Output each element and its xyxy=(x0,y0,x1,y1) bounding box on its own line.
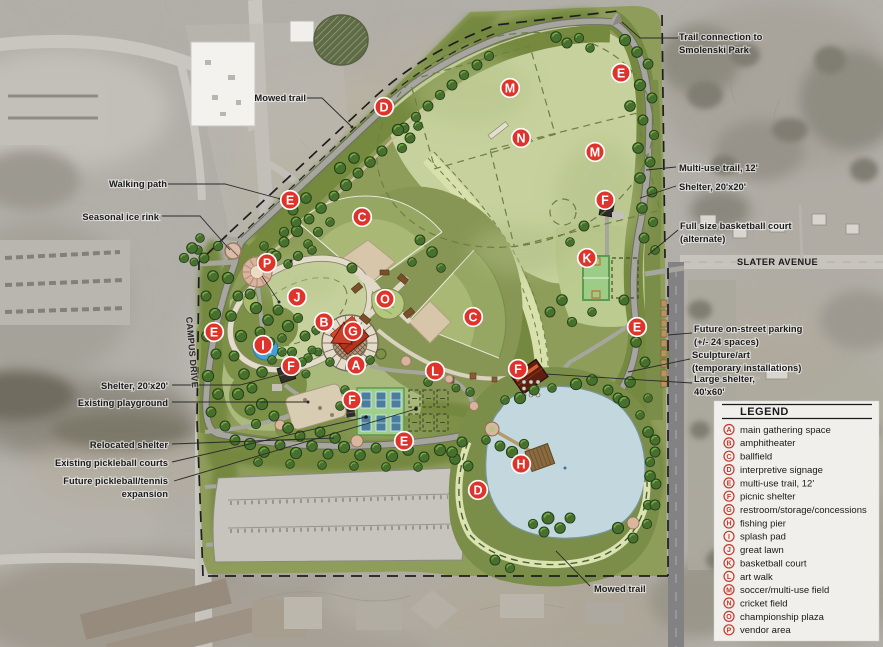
svg-text:Walking path: Walking path xyxy=(109,178,167,189)
svg-text:E: E xyxy=(727,481,732,488)
svg-text:B: B xyxy=(319,315,328,329)
svg-text:B: B xyxy=(726,441,731,448)
svg-text:E: E xyxy=(400,434,408,448)
svg-text:LEGEND: LEGEND xyxy=(740,406,789,418)
svg-text:L: L xyxy=(431,364,439,378)
svg-text:Full size basketball court: Full size basketball court xyxy=(680,220,792,231)
svg-text:Large shelter,: Large shelter, xyxy=(694,373,755,384)
svg-text:F: F xyxy=(348,393,356,407)
svg-text:Existing pickleball courts: Existing pickleball courts xyxy=(55,457,168,468)
svg-text:H: H xyxy=(516,457,525,471)
svg-text:G: G xyxy=(726,507,732,514)
svg-text:multi-use trail, 12': multi-use trail, 12' xyxy=(740,478,814,489)
svg-text:J: J xyxy=(294,290,301,304)
svg-text:expansion: expansion xyxy=(122,488,169,499)
svg-text:F: F xyxy=(287,359,295,373)
svg-text:cricket field: cricket field xyxy=(740,598,788,609)
svg-text:F: F xyxy=(727,494,732,501)
svg-text:art walk: art walk xyxy=(740,572,773,583)
svg-text:vendor area: vendor area xyxy=(740,625,791,636)
svg-text:E: E xyxy=(286,193,294,207)
svg-text:M: M xyxy=(726,587,732,594)
svg-text:Existing playground: Existing playground xyxy=(78,397,168,408)
svg-text:E: E xyxy=(617,66,625,80)
svg-text:fishing pier: fishing pier xyxy=(740,518,786,529)
svg-text:D: D xyxy=(473,483,482,497)
svg-text:N: N xyxy=(726,601,731,608)
svg-text:D: D xyxy=(726,467,731,474)
svg-text:F: F xyxy=(601,193,609,207)
svg-text:Multi-use trail, 12': Multi-use trail, 12' xyxy=(679,162,758,173)
svg-text:Trail connection to: Trail connection to xyxy=(679,31,763,42)
svg-text:N: N xyxy=(516,131,525,145)
svg-text:Shelter, 20'x20': Shelter, 20'x20' xyxy=(679,181,746,192)
svg-text:championship plaza: championship plaza xyxy=(740,612,825,623)
svg-text:C: C xyxy=(357,210,366,224)
svg-text:A: A xyxy=(351,358,360,372)
svg-text:C: C xyxy=(726,454,731,461)
svg-text:I: I xyxy=(728,534,730,541)
svg-text:ballfield: ballfield xyxy=(740,452,772,463)
svg-text:F: F xyxy=(514,362,522,376)
svg-text:Sculpture/art: Sculpture/art xyxy=(692,349,750,360)
svg-text:Mowed trail: Mowed trail xyxy=(594,583,646,594)
svg-text:soccer/multi-use field: soccer/multi-use field xyxy=(740,585,829,596)
svg-text:C: C xyxy=(468,310,477,324)
svg-text:A: A xyxy=(726,427,731,434)
svg-text:Relocated shelter: Relocated shelter xyxy=(90,439,169,450)
svg-text:E: E xyxy=(210,325,218,339)
svg-text:E: E xyxy=(633,320,641,334)
svg-text:K: K xyxy=(582,251,591,265)
svg-text:H: H xyxy=(726,521,731,528)
svg-text:Smolenski Park: Smolenski Park xyxy=(679,44,750,55)
svg-text:splash pad: splash pad xyxy=(740,532,786,543)
svg-text:Shelter, 20'x20': Shelter, 20'x20' xyxy=(101,380,168,391)
svg-text:(+/- 24 spaces): (+/- 24 spaces) xyxy=(694,336,759,347)
svg-text:G: G xyxy=(348,324,358,338)
svg-text:(temporary installations): (temporary installations) xyxy=(692,362,801,373)
svg-text:P: P xyxy=(727,627,732,634)
svg-text:O: O xyxy=(726,614,732,621)
svg-text:M: M xyxy=(590,145,600,159)
svg-text:Seasonal ice rink: Seasonal ice rink xyxy=(82,211,159,222)
svg-text:D: D xyxy=(379,100,388,114)
svg-text:SLATER AVENUE: SLATER AVENUE xyxy=(737,257,818,267)
svg-text:O: O xyxy=(380,292,390,306)
svg-text:J: J xyxy=(727,547,731,554)
svg-text:M: M xyxy=(505,81,515,95)
svg-text:K: K xyxy=(726,561,731,568)
svg-text:P: P xyxy=(263,256,271,270)
svg-text:interpretive signage: interpretive signage xyxy=(740,465,823,476)
svg-text:(alternate): (alternate) xyxy=(680,233,725,244)
svg-text:main gathering space: main gathering space xyxy=(740,425,831,436)
svg-text:I: I xyxy=(261,338,264,352)
svg-text:Mowed trail: Mowed trail xyxy=(254,92,306,103)
svg-text:amphitheater: amphitheater xyxy=(740,438,795,449)
svg-text:Future pickleball/tennis: Future pickleball/tennis xyxy=(63,475,168,486)
svg-text:restroom/storage/concessions: restroom/storage/concessions xyxy=(740,505,867,516)
svg-text:Future on-street parking: Future on-street parking xyxy=(694,323,803,334)
svg-text:40'x60': 40'x60' xyxy=(694,386,725,397)
svg-text:great lawn: great lawn xyxy=(740,545,784,556)
svg-text:picnic shelter: picnic shelter xyxy=(740,492,795,503)
svg-text:L: L xyxy=(727,574,732,581)
svg-text:basketball court: basketball court xyxy=(740,558,807,569)
